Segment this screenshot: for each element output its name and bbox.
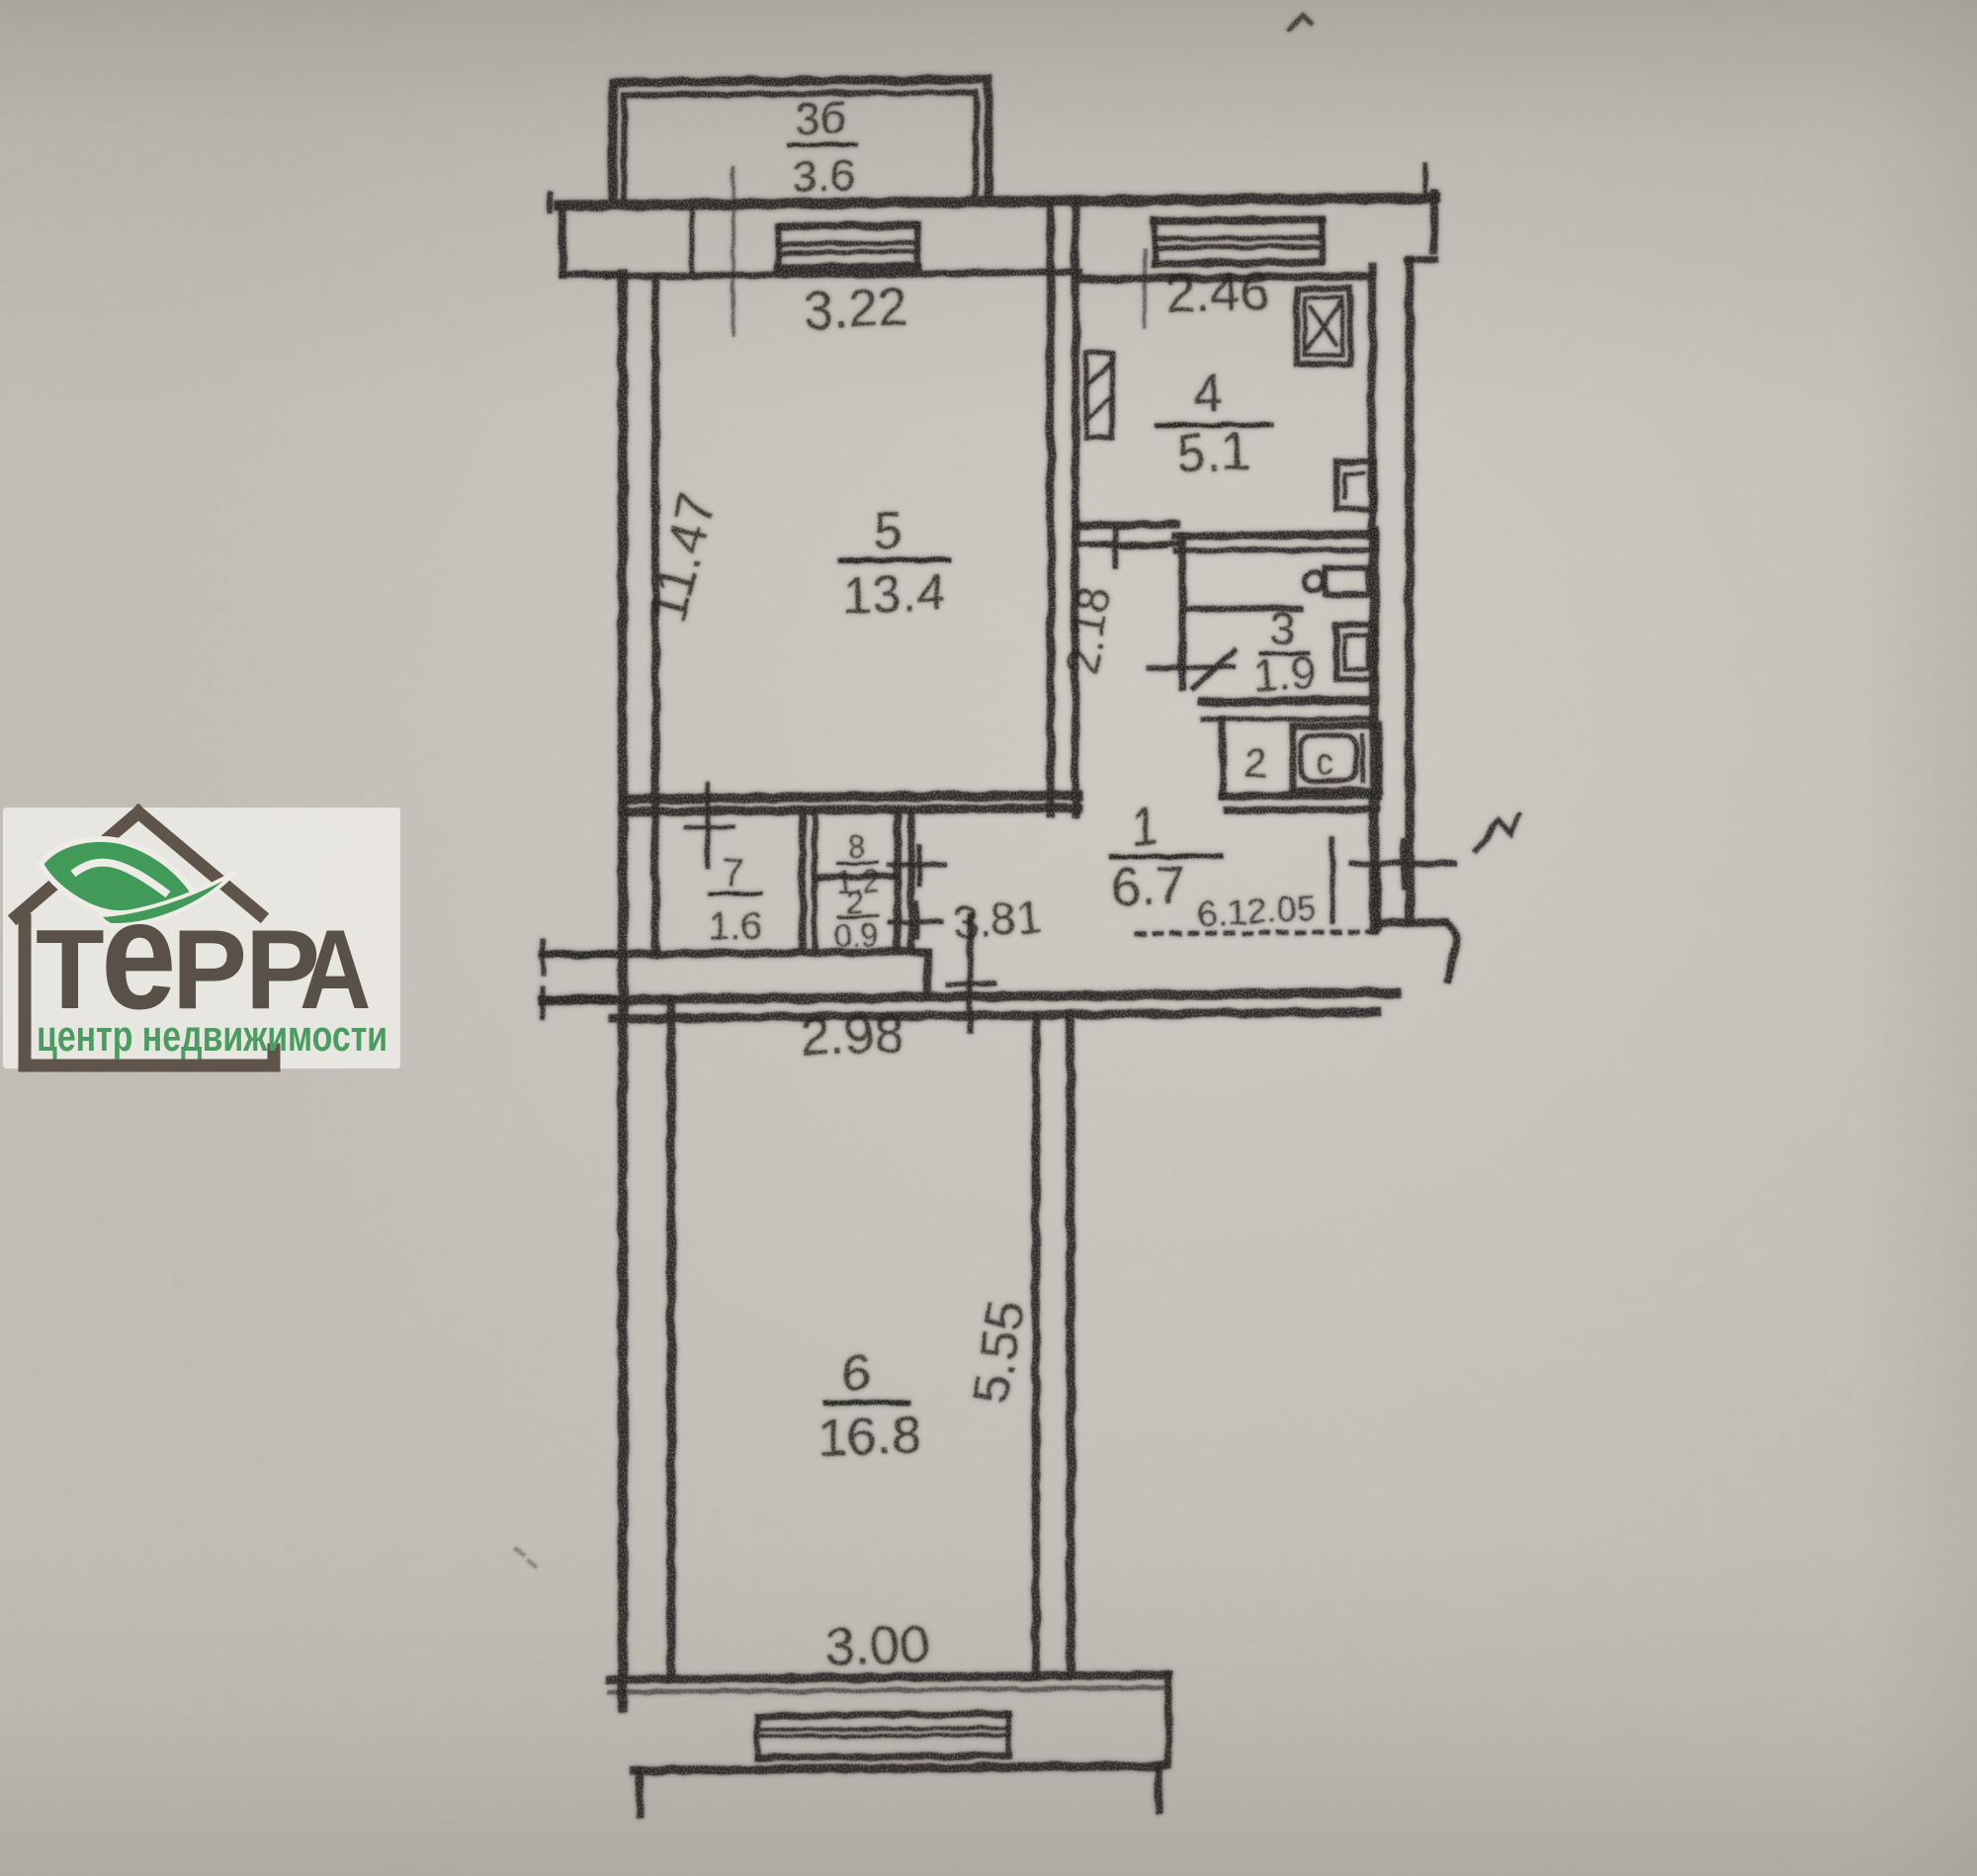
svg-text:0.9: 0.9 bbox=[834, 917, 878, 953]
svg-text:1.9: 1.9 bbox=[1251, 646, 1318, 702]
svg-text:2: 2 bbox=[845, 884, 863, 919]
svg-text:4: 4 bbox=[1193, 364, 1223, 423]
svg-text:3б: 3б bbox=[795, 92, 846, 143]
svg-text:3.22: 3.22 bbox=[803, 277, 908, 341]
svg-text:6.12.05: 6.12.05 bbox=[1196, 887, 1317, 934]
svg-text:2.46: 2.46 bbox=[1164, 261, 1270, 324]
svg-text:3.00: 3.00 bbox=[825, 1615, 930, 1677]
svg-text:7: 7 bbox=[723, 851, 744, 895]
svg-text:3.6: 3.6 bbox=[792, 148, 857, 203]
svg-text:2.98: 2.98 bbox=[799, 1004, 903, 1066]
svg-text:5.1: 5.1 bbox=[1175, 422, 1251, 484]
svg-text:1: 1 bbox=[1130, 798, 1160, 857]
svg-text:центр недвижимости: центр недвижимости bbox=[37, 1012, 387, 1061]
svg-text:1.6: 1.6 bbox=[708, 904, 763, 948]
svg-text:6: 6 bbox=[841, 1343, 871, 1403]
svg-text:13.4: 13.4 bbox=[841, 562, 947, 627]
svg-text:16.8: 16.8 bbox=[817, 1405, 922, 1468]
svg-text:6.7: 6.7 bbox=[1110, 855, 1186, 917]
svg-text:8: 8 bbox=[847, 828, 865, 864]
svg-text:3.81: 3.81 bbox=[951, 891, 1043, 949]
svg-text:3: 3 bbox=[1269, 602, 1295, 653]
svg-text:2: 2 bbox=[1244, 739, 1266, 786]
svg-text:5: 5 bbox=[873, 501, 903, 560]
svg-text:с: с bbox=[1316, 741, 1333, 782]
